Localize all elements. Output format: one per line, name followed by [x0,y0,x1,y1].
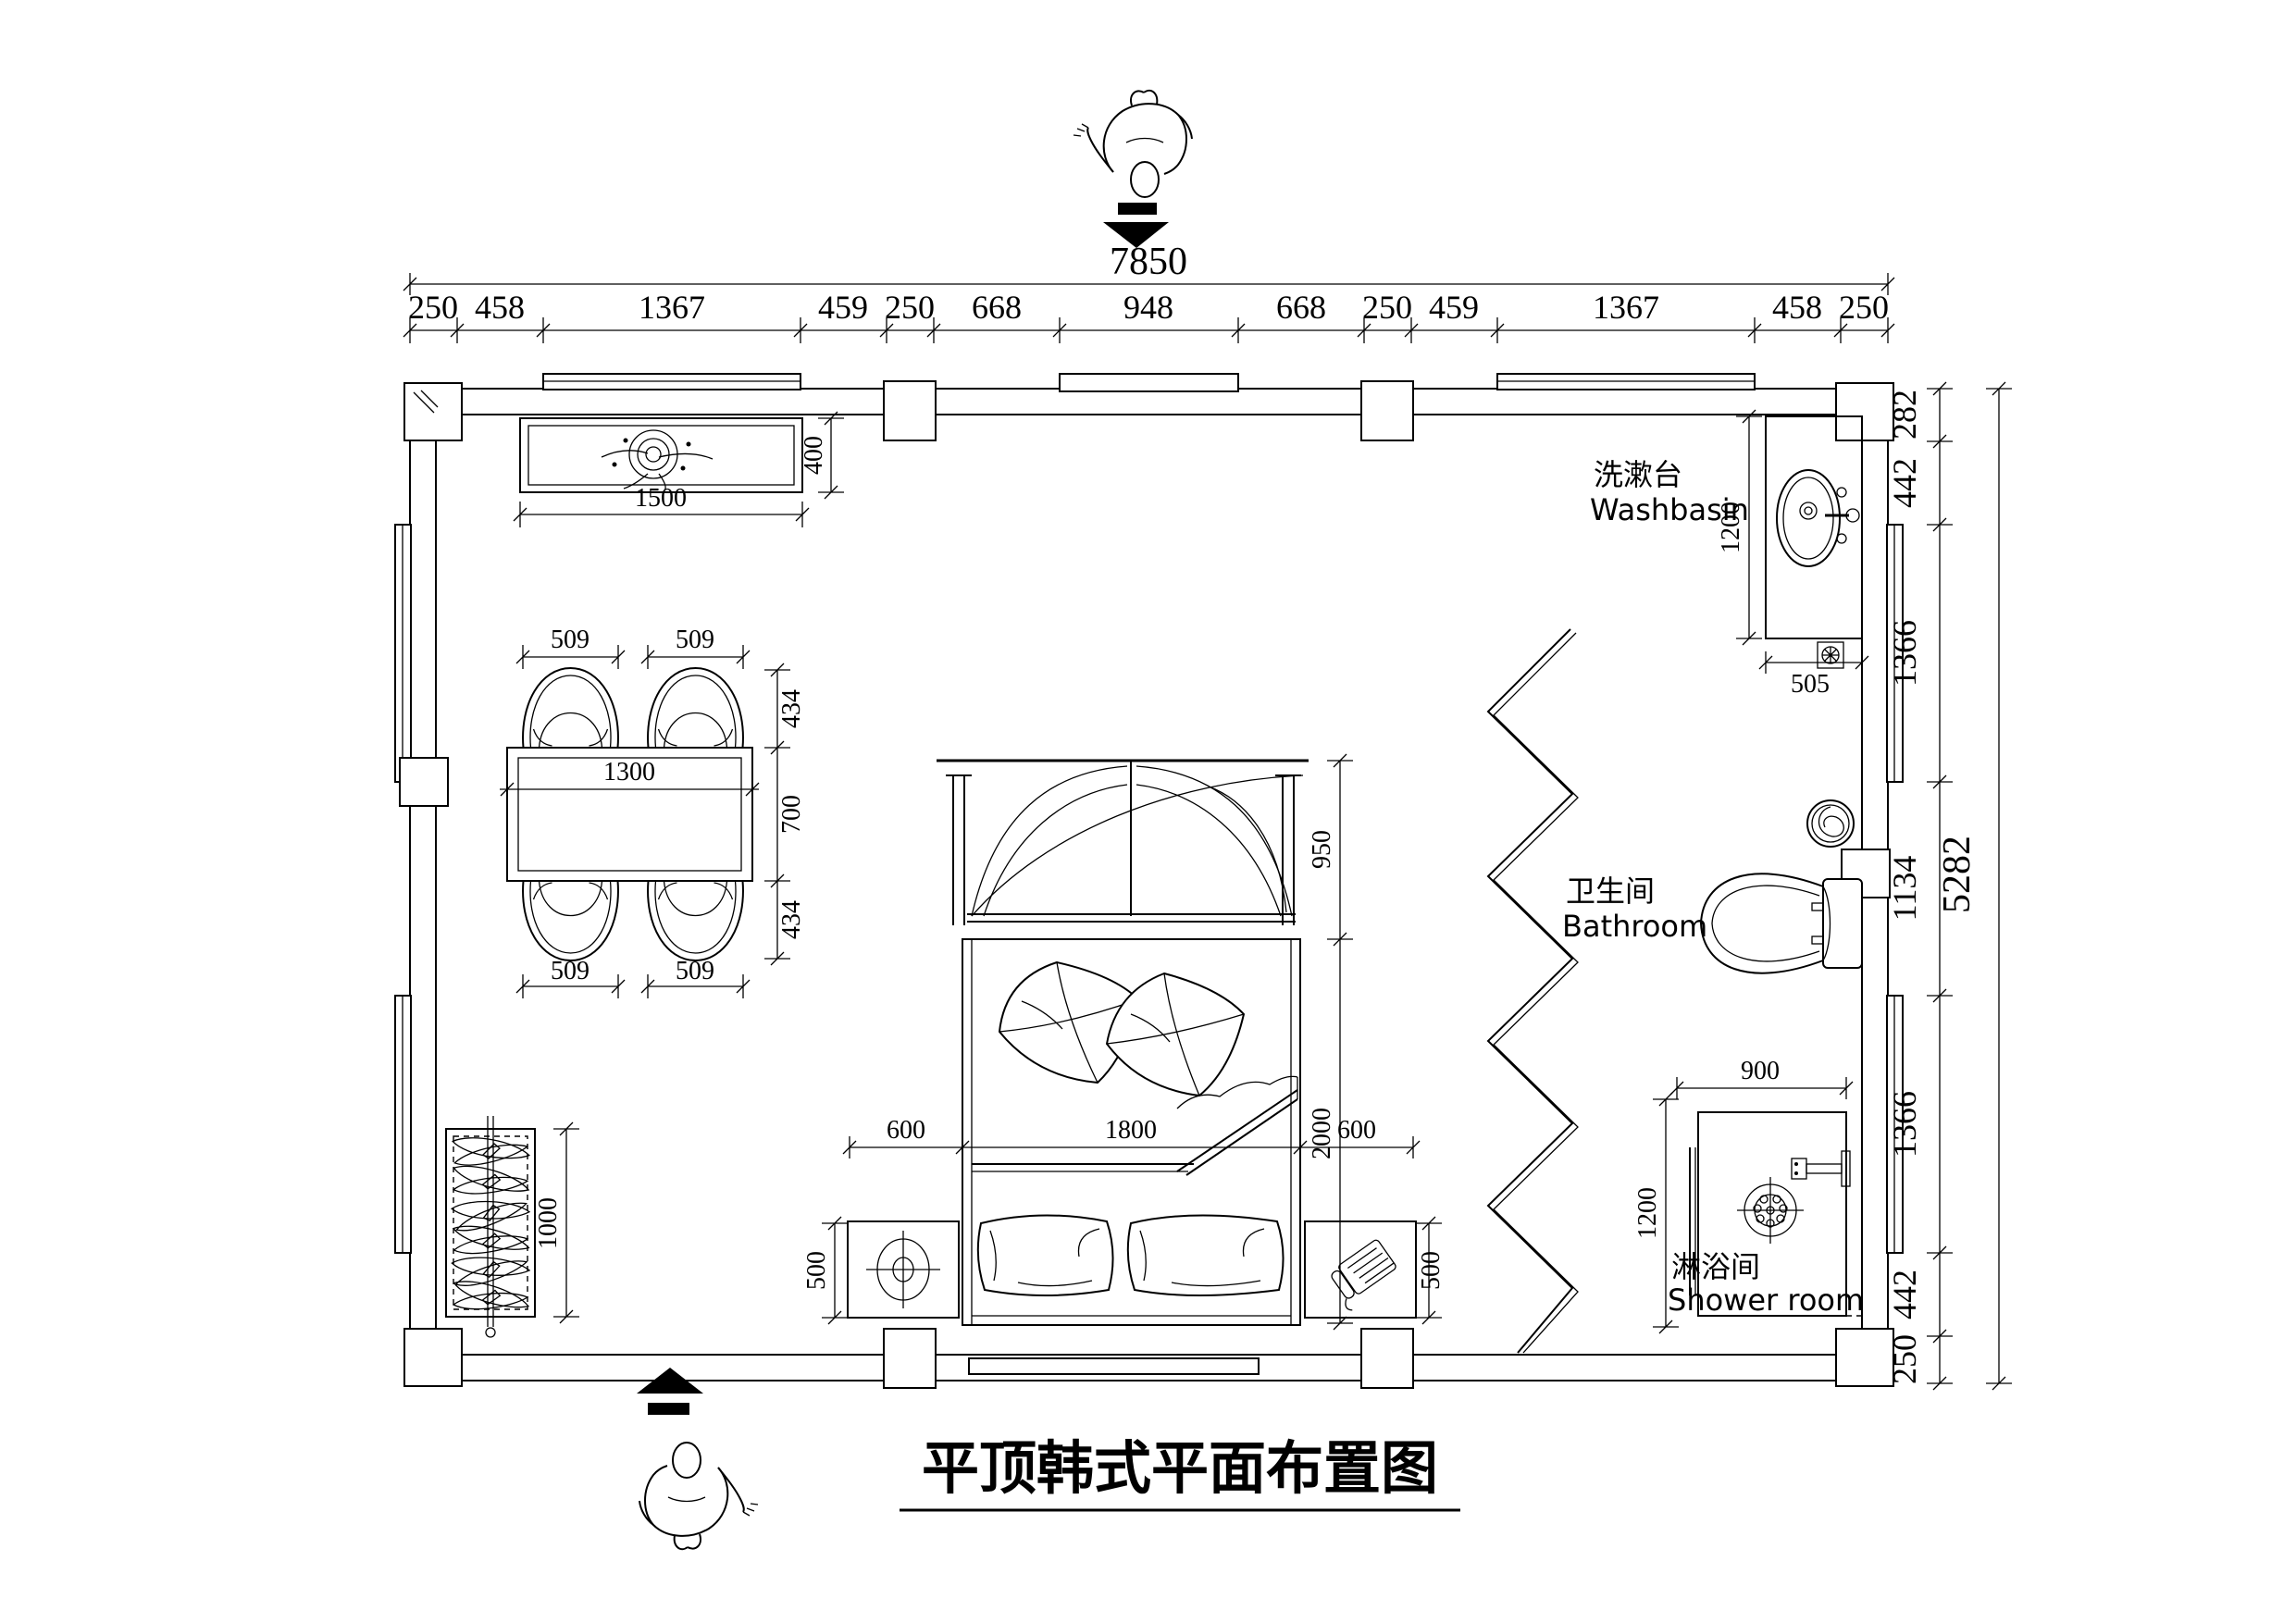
dim-top-seg: 458 [1772,289,1822,326]
bathroom-label-en: Bathroom [1562,909,1707,944]
shower-label-en: Shower room [1668,1282,1864,1318]
bed-side-right-dim: 600 [1337,1116,1376,1145]
bed-width-dim: 1800 [1105,1116,1157,1145]
dining-chair [648,881,743,960]
plant-decor [602,430,713,490]
floor-plan-canvas: 1500 400 509 509 1300 434 700 434 [0,0,2296,1623]
dim-top-seg: 948 [1123,289,1173,326]
dim-top-seg: 250 [1362,289,1412,326]
dim-right-seg: 1366 [1886,620,1923,687]
shower-label-zh: 淋浴间 [1671,1249,1760,1284]
washbasin-label-zh: 洗漱台 [1594,457,1682,492]
entry-bottom [637,1368,758,1549]
floor-drain-square [1818,642,1843,668]
shower-drain [1737,1177,1804,1244]
dim-top-seg: 459 [1429,289,1479,326]
bathroom-label-zh: 卫生间 [1566,873,1655,909]
chair-depth-dim: 434 [777,900,806,939]
chair-width-dim: 509 [676,957,714,985]
person-top [1074,91,1192,197]
window-left-lower [395,996,411,1253]
entry-bar-bottom [648,1403,689,1415]
window-top-right [1497,374,1755,390]
washbasin-label-en: Washbasin [1590,492,1749,527]
table-depth-dim: 700 [777,795,806,834]
dim-right-total: 5282 [1936,836,1979,913]
floor-drain-round [1807,800,1854,847]
nightstand-right [1305,1221,1416,1318]
dining-chair [523,881,618,960]
door-threshold-bottom [969,1358,1259,1374]
dim-top-seg: 668 [1276,289,1326,326]
nightstand-left [848,1221,959,1318]
dining-set: 509 509 1300 434 700 434 509 509 [500,626,806,998]
washbasin-area: 1200 505 洗漱台 Washbasin [1590,410,1868,699]
dim-top-seg: 1367 [1593,289,1659,326]
door-threshold-top [1060,374,1238,391]
dim-right-seg: 1134 [1886,856,1923,922]
entry-bar-top [1118,203,1157,215]
dim-right-seg: 442 [1886,458,1923,508]
dim-top-seg: 668 [972,289,1022,326]
wardrobe-rack: 1000 [446,1116,579,1337]
bed-canopy [937,761,1309,925]
dim-top-seg: 1367 [639,289,705,326]
table-width-dim: 1300 [603,758,655,787]
dim-right-seg: 1366 [1886,1091,1923,1158]
dim-top: 7850 250 458 1367 459 250 668 948 668 25… [403,241,1894,343]
washbasin-dims: 1200 505 [1717,410,1868,699]
wardrobe-length-dim: 1000 [534,1197,563,1249]
shower-width-dim: 900 [1741,1057,1780,1085]
dim-top-seg: 250 [1839,289,1889,326]
dim-right: 282 442 1366 1134 1366 442 250 5282 [1886,382,2012,1390]
washbasin-width-dim: 505 [1791,670,1830,699]
bed-side-left-dim: 600 [887,1116,925,1145]
console-depth-dim: 400 [800,436,828,475]
dim-top-seg: 459 [818,289,868,326]
chair-width-dim: 509 [551,626,590,654]
window-left-upper [395,525,411,782]
floor-plan-page: 1500 400 509 509 1300 434 700 434 [0,0,2296,1623]
chair-depth-dim: 434 [777,689,806,728]
chair-width-dim: 509 [551,957,590,985]
hanger [450,1220,531,1259]
dim-top-seg: 250 [408,289,458,326]
chair-width-dim: 509 [676,626,714,654]
bathroom-area: 卫生间 Bathroom [1562,800,1862,973]
faucet [1825,488,1859,543]
window-top-left [543,374,800,390]
dim-right-seg: 442 [1886,1270,1923,1319]
dim-top-seg: 458 [475,289,525,326]
sleeping-pillow [978,1215,1113,1295]
console-width-dim: 1500 [635,484,687,513]
dining-chair [523,668,618,748]
dim-right-seg: 282 [1886,390,1923,440]
dim-top-total: 7850 [1110,241,1187,283]
title-text: 平顶韩式平面布置图 [922,1434,1438,1502]
toilet [1701,873,1862,973]
shower-depth-dim: 1200 [1633,1187,1662,1239]
canopy-depth-dim: 950 [1308,830,1336,869]
drawing-title: 平顶韩式平面布置图 [900,1434,1460,1510]
hanger [450,1248,532,1289]
hanger [449,1190,532,1234]
dim-right-seg: 250 [1886,1334,1923,1384]
hanger [450,1275,533,1318]
nightstand-dim: 500 [1417,1251,1446,1290]
person-bottom [639,1443,758,1549]
folding-partition [1488,629,1578,1353]
sleeping-pillow [1128,1215,1284,1295]
dining-chair [648,668,743,748]
nightstand-dim: 500 [802,1251,831,1290]
shower-area: 900 1200 淋浴间 Shower room [1633,1057,1864,1333]
console-cabinet: 1500 400 [514,412,844,527]
hanger [450,1160,532,1202]
dim-top-seg: 250 [885,289,935,326]
entry-top [1074,91,1192,248]
hanger [452,1134,531,1167]
shower-head [1792,1151,1850,1186]
bed-group: 950 2000 600 1800 600 500 500 [802,754,1446,1330]
bed-length-dim: 2000 [1308,1108,1336,1159]
